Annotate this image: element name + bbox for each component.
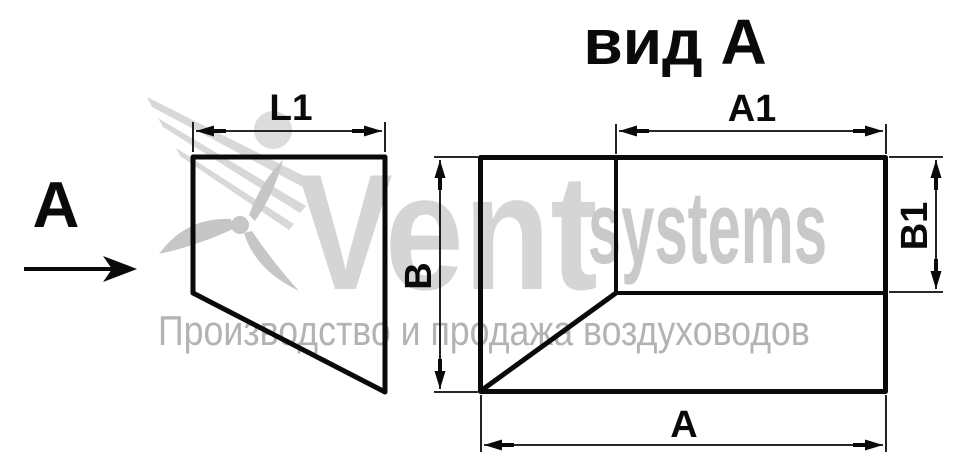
dim-arrow-right-icon	[853, 440, 883, 451]
dim-arrow-right-icon	[352, 126, 382, 137]
dim-arrow-down-icon	[931, 259, 942, 289]
dim-a1: А1	[616, 88, 886, 154]
dim-l1-label: L1	[269, 87, 312, 128]
view-direction-arrow	[24, 256, 137, 282]
dim-arrow-left-icon	[484, 440, 514, 451]
dim-arrow-right-icon	[853, 126, 883, 137]
logo-hub-circle	[231, 216, 249, 234]
dim-arrow-down-icon	[435, 359, 446, 389]
dim-b1-label: В1	[894, 202, 936, 251]
watermark: Vent systems Производство и продажа возд…	[147, 97, 827, 355]
view-a-title: вид А	[583, 6, 766, 78]
dim-a-label: А	[670, 404, 697, 446]
technical-drawing-page: Vent systems Производство и продажа возд…	[0, 0, 957, 463]
brand-tagline: Производство и продажа воздуховодов	[158, 308, 810, 354]
brand-name-secondary: systems	[588, 170, 827, 285]
view-direction-label: А	[33, 168, 80, 241]
dim-arrow-up-icon	[931, 160, 942, 190]
dim-a: А	[481, 395, 886, 452]
logo-fan-blade	[244, 231, 299, 291]
dim-b1: В1	[889, 157, 943, 292]
dim-b-label: В	[398, 262, 440, 289]
dim-arrow-left-icon	[619, 126, 649, 137]
dim-a1-label: А1	[728, 88, 777, 130]
drawing-canvas: Vent systems Производство и продажа возд…	[0, 0, 957, 463]
brand-name-primary: Vent	[298, 140, 598, 324]
logo-fan-blade	[159, 219, 233, 254]
